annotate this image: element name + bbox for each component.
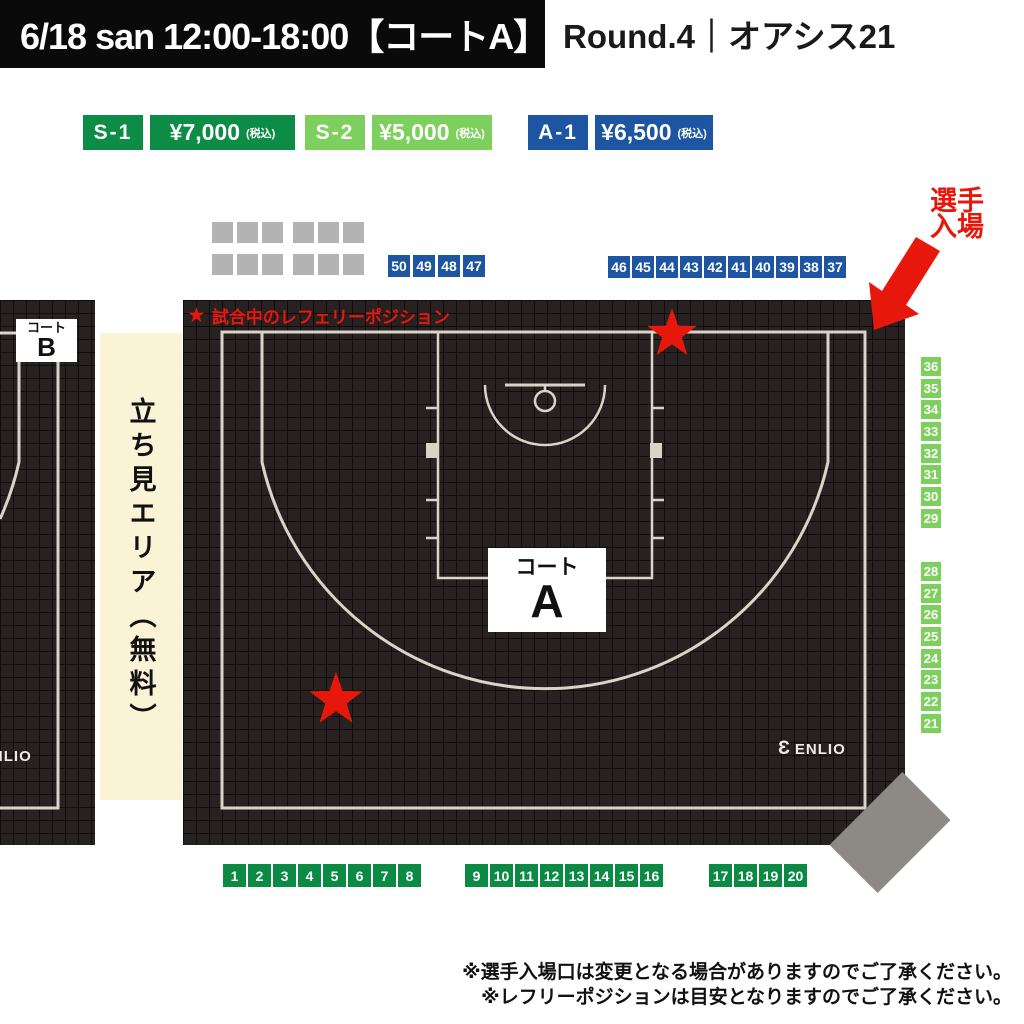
gray-seat-block <box>262 254 283 275</box>
seat-29: 29 <box>921 509 941 528</box>
tax-note: (税込) <box>678 125 707 141</box>
seat-23: 23 <box>921 670 941 689</box>
legend-s1-price: ¥7,000 (税込) <box>150 115 295 150</box>
disclaimer-notes: ※選手入場口は変更となる場合がありますのでご了承ください。 ※レフリーポジション… <box>462 960 1012 1010</box>
court-a-label-letter: A <box>530 578 563 624</box>
seat-26: 26 <box>921 605 941 624</box>
court-a: ★ 試合中のレフェリーポジション コート A ƐENLIO <box>183 300 905 845</box>
court-b-label-letter: B <box>37 334 56 360</box>
gray-seat-block-group <box>212 222 283 243</box>
seat-50: 50 <box>388 255 410 277</box>
seat-31: 31 <box>921 465 941 484</box>
legend-a1-label: A-1 <box>528 115 588 150</box>
seat-43: 43 <box>680 256 702 278</box>
seat-36: 36 <box>921 357 941 376</box>
star-icon: ★ <box>187 303 206 328</box>
event-banner-text: 6/18 san 12:00-18:00【コートA】 <box>20 8 548 60</box>
seat-9: 9 <box>465 864 488 887</box>
seat-1: 1 <box>223 864 246 887</box>
seat-22: 22 <box>921 692 941 711</box>
gray-seat-block <box>212 254 233 275</box>
gray-seat-block <box>293 222 314 243</box>
seat-4: 4 <box>298 864 321 887</box>
seat-17: 17 <box>709 864 732 887</box>
seat-row-46-37: 46454443424140393837 <box>608 256 846 278</box>
seat-21: 21 <box>921 714 941 733</box>
legend-a1-price: ¥6,500 (税込) <box>595 115 713 150</box>
seat-3: 3 <box>273 864 296 887</box>
gray-seat-block-group <box>212 254 283 275</box>
enlio-mark-icon: Ɛ <box>778 738 791 759</box>
entrance-line2: 入場 <box>930 212 984 242</box>
seat-49: 49 <box>413 255 435 277</box>
seat-28: 28 <box>921 562 941 581</box>
seat-18: 18 <box>734 864 757 887</box>
referee-legend-text: 試合中のレフェリーポジション <box>212 303 450 328</box>
note-entrance: ※選手入場口は変更となる場合がありますのでご了承ください。 <box>462 960 1012 985</box>
seat-row-17-20: 17181920 <box>709 864 807 887</box>
seat-row-50-47: 50494847 <box>388 255 485 277</box>
seat-2: 2 <box>248 864 271 887</box>
gray-seat-block <box>343 254 364 275</box>
gray-seat-block <box>343 222 364 243</box>
seat-20: 20 <box>784 864 807 887</box>
seat-8: 8 <box>398 864 421 887</box>
court-b-label: コート B <box>16 319 77 362</box>
seat-24: 24 <box>921 649 941 668</box>
seat-12: 12 <box>540 864 563 887</box>
legend-s2-label: S-2 <box>305 115 365 150</box>
seat-48: 48 <box>438 255 460 277</box>
round-title: Round.4｜オアシス21 <box>563 0 895 68</box>
legend-s2-price: ¥5,000 (税込) <box>372 115 492 150</box>
seat-42: 42 <box>704 256 726 278</box>
price-value: ¥5,000 <box>379 119 449 146</box>
gray-seat-block-group <box>293 254 364 275</box>
gray-seat-block <box>237 222 258 243</box>
seat-45: 45 <box>632 256 654 278</box>
seat-30: 30 <box>921 487 941 506</box>
seat-37: 37 <box>824 256 846 278</box>
seat-41: 41 <box>728 256 750 278</box>
seat-column-36-29: 3635343332313029 <box>921 357 941 528</box>
enlio-logo: ƐENLIO <box>778 738 846 760</box>
event-banner: 6/18 san 12:00-18:00【コートA】 <box>0 0 545 68</box>
tax-note: (税込) <box>456 125 485 141</box>
gray-seat-block <box>212 222 233 243</box>
player-entrance-label: 選手 入場 <box>926 188 988 240</box>
seat-33: 33 <box>921 422 941 441</box>
enlio-logo-partial: ƐENLIO <box>0 745 32 767</box>
seat-27: 27 <box>921 584 941 603</box>
seat-35: 35 <box>921 379 941 398</box>
tax-note: (税込) <box>246 125 275 141</box>
seat-25: 25 <box>921 627 941 646</box>
seat-14: 14 <box>590 864 613 887</box>
seat-19: 19 <box>759 864 782 887</box>
standing-area-label: 立ち見エリア（無料） <box>122 397 161 737</box>
seat-6: 6 <box>348 864 371 887</box>
seat-44: 44 <box>656 256 678 278</box>
gray-seat-block <box>237 254 258 275</box>
seat-13: 13 <box>565 864 588 887</box>
gray-seat-block <box>262 222 283 243</box>
seat-10: 10 <box>490 864 513 887</box>
seat-7: 7 <box>373 864 396 887</box>
seat-46: 46 <box>608 256 630 278</box>
seat-39: 39 <box>776 256 798 278</box>
seat-34: 34 <box>921 400 941 419</box>
gray-seat-block <box>318 254 339 275</box>
seat-15: 15 <box>615 864 638 887</box>
seat-38: 38 <box>800 256 822 278</box>
price-value: ¥6,500 <box>601 119 671 146</box>
seating-chart-page: 6/18 san 12:00-18:00【コートA】 Round.4｜オアシス2… <box>0 0 1024 1024</box>
seat-47: 47 <box>463 255 485 277</box>
court-b: コート B ƐENLIO <box>0 300 95 845</box>
gray-seat-block <box>318 222 339 243</box>
price-value: ¥7,000 <box>170 119 240 146</box>
standing-area: 立ち見エリア（無料） <box>100 333 182 800</box>
legend-s1-label: S-1 <box>83 115 143 150</box>
seat-16: 16 <box>640 864 663 887</box>
seat-row-9-16: 910111213141516 <box>465 864 663 887</box>
court-a-label: コート A <box>488 548 606 632</box>
referee-position-legend: ★ 試合中のレフェリーポジション <box>187 303 450 328</box>
note-referee: ※レフリーポジションは目安となりますのでご了承ください。 <box>462 985 1012 1010</box>
seat-column-28-21: 2827262524232221 <box>921 562 941 733</box>
gray-seat-block <box>293 254 314 275</box>
seat-row-1-8: 12345678 <box>223 864 421 887</box>
seat-32: 32 <box>921 444 941 463</box>
seat-11: 11 <box>515 864 538 887</box>
seat-5: 5 <box>323 864 346 887</box>
seat-40: 40 <box>752 256 774 278</box>
gray-seat-block-group <box>293 222 364 243</box>
